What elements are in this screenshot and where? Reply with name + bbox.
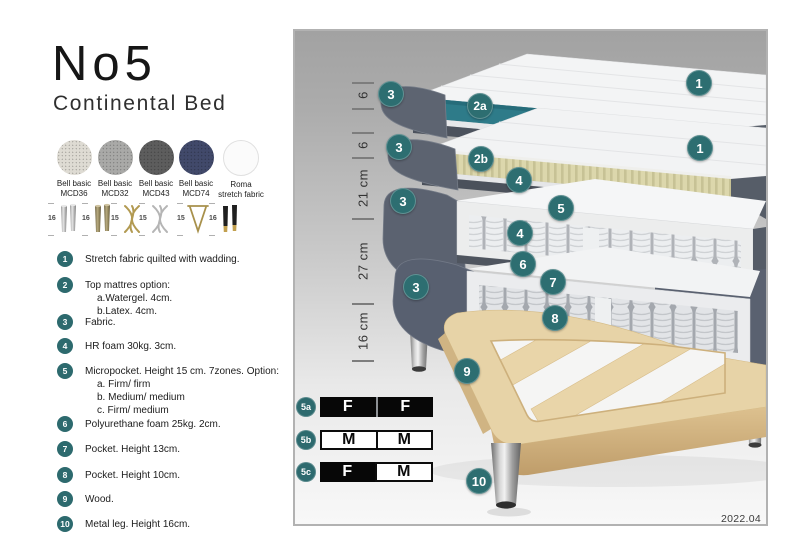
ruler-tick xyxy=(352,82,374,84)
version-stamp: 2022.04 xyxy=(721,513,761,525)
feature-number-badge: 3 xyxy=(57,314,73,330)
measure-dash xyxy=(48,203,54,204)
callout-9: 9 xyxy=(454,358,480,384)
feature-item-1: 1 Stretch fabric quilted with wadding. xyxy=(57,251,240,267)
feature-text: Fabric. xyxy=(85,316,116,329)
fabric-swatch-image xyxy=(223,140,259,176)
callout-8: 8 xyxy=(542,305,568,331)
ruler-tick xyxy=(352,303,374,305)
callout-3-latex: 3 xyxy=(386,134,412,160)
dimension-label-mattress: 21 cm xyxy=(356,169,371,207)
leg-height: 16 xyxy=(209,215,217,223)
swatch-code: stretch fabric xyxy=(213,190,269,200)
ruler-tick xyxy=(352,108,374,110)
feature-number-badge: 7 xyxy=(57,441,73,457)
fabric-swatch-image xyxy=(179,140,214,175)
firmness-cell: M xyxy=(378,430,434,450)
feature-item-8: 8 Pocket. Height 10cm. xyxy=(57,467,180,483)
feature-number-badge: 2 xyxy=(57,277,73,293)
measure-dash xyxy=(48,235,54,236)
feature-text: Wood. xyxy=(85,493,114,506)
callout-1-mid: 1 xyxy=(687,135,713,161)
feature-text: Metal leg. Height 16cm. xyxy=(85,518,190,531)
feature-number-badge: 9 xyxy=(57,491,73,507)
fabric-swatch-roma: Romastretch fabric xyxy=(213,140,269,199)
feature-item-9: 9 Wood. xyxy=(57,491,114,507)
ruler-tick xyxy=(352,157,374,159)
firmness-cell: M xyxy=(320,430,378,450)
feature-subtext: a. Firm/ firm xyxy=(85,378,279,391)
feature-text: Micropocket. Height 15 cm. 7zones. Optio… xyxy=(85,365,279,378)
firmness-row-label-5c: 5c xyxy=(296,462,316,482)
measure-dash xyxy=(177,235,183,236)
callout-7: 7 xyxy=(540,269,566,295)
feature-text: Polyurethane foam 25kg. 2cm. xyxy=(85,418,221,431)
measure-dash xyxy=(139,203,145,204)
leg-height: 16 xyxy=(82,215,90,223)
firmness-cell: F xyxy=(320,397,376,417)
firmness-bar-5a: F F xyxy=(320,397,433,417)
ruler-tick xyxy=(352,218,374,220)
firmness-cell: F xyxy=(320,462,375,482)
feature-number-badge: 1 xyxy=(57,251,73,267)
measure-dash xyxy=(111,235,117,236)
firmness-bar-5b: M M xyxy=(320,430,433,450)
feature-text: Pocket. Height 10cm. xyxy=(85,469,180,482)
feature-number-badge: 4 xyxy=(57,338,73,354)
measure-dash xyxy=(82,203,88,204)
feature-text: Pocket. Height 13cm. xyxy=(85,443,180,456)
measure-dash xyxy=(177,203,183,204)
firmness-row-label-5a: 5a xyxy=(296,397,316,417)
feature-item-6: 6 Polyurethane foam 25kg. 2cm. xyxy=(57,416,221,432)
callout-4-top: 4 xyxy=(506,167,532,193)
dimension-label-topper: 6 xyxy=(356,91,371,99)
leg-height: 15 xyxy=(177,215,185,223)
measure-dash xyxy=(209,203,215,204)
firmness-row-label-5b: 5b xyxy=(296,430,316,450)
feature-text: Stretch fabric quilted with wadding. xyxy=(85,253,240,266)
feature-item-7: 7 Pocket. Height 13cm. xyxy=(57,441,180,457)
callout-4-bottom: 4 xyxy=(507,220,533,246)
feature-text: HR foam 30kg. 3cm. xyxy=(85,340,176,353)
feature-number-badge: 6 xyxy=(57,416,73,432)
feature-subtext: b. Medium/ medium xyxy=(85,391,279,404)
leg-option-1: 16 xyxy=(48,202,81,236)
feature-item-3: 3 Fabric. xyxy=(57,314,116,330)
measure-dash xyxy=(209,235,215,236)
feature-subtext: a.Watergel. 4cm. xyxy=(85,292,172,305)
leg-cylinder-silver-icon xyxy=(57,202,81,236)
callout-1-top: 1 xyxy=(686,70,712,96)
dimension-label-leg: 16 cm xyxy=(356,312,371,350)
diagram-panel: 6 6 21 cm 27 cm 16 cm 3 2a 1 3 2b 1 4 5 … xyxy=(293,29,768,526)
leg-height: 15 xyxy=(111,215,119,223)
feature-item-5: 5 Micropocket. Height 15 cm. 7zones. Opt… xyxy=(57,363,279,417)
leg-option-2: 16 xyxy=(82,202,115,236)
feature-number-badge: 10 xyxy=(57,516,73,532)
ruler-tick xyxy=(352,360,374,362)
callout-2a: 2a xyxy=(467,93,493,119)
callout-3-mattress: 3 xyxy=(390,188,416,214)
feature-text: Top mattres option: xyxy=(85,279,172,292)
leg-height: 15 xyxy=(139,215,147,223)
leg-option-6: 16 xyxy=(209,202,242,236)
firmness-cell: M xyxy=(375,462,434,482)
swatch-name: Roma xyxy=(213,180,269,190)
page-title: No5 xyxy=(52,36,157,92)
feature-number-badge: 5 xyxy=(57,363,73,379)
leg-height: 16 xyxy=(48,215,56,223)
firmness-bar-5c: F M xyxy=(320,462,433,482)
leg-hairpin-icon xyxy=(186,202,210,236)
callout-10: 10 xyxy=(466,468,492,494)
callout-3-base: 3 xyxy=(403,274,429,300)
leg-black-gold-icon xyxy=(218,202,242,236)
ruler-tick xyxy=(352,132,374,134)
dimension-label-topper2: 6 xyxy=(356,141,371,149)
feature-item-2: 2 Top mattres option: a.Watergel. 4cm. b… xyxy=(57,277,172,318)
callout-2b: 2b xyxy=(468,146,494,172)
firmness-cell: F xyxy=(376,397,434,417)
leg-option-4: 15 xyxy=(139,202,172,236)
leg-twisted-silver-icon xyxy=(148,202,172,236)
callout-3-topper: 3 xyxy=(378,81,404,107)
leg-option-5: 15 xyxy=(177,202,210,236)
infographic-page: No5 Continental Bed Bell basicMCD36 Bell… xyxy=(0,18,800,551)
callout-6: 6 xyxy=(510,251,536,277)
dimension-label-base: 27 cm xyxy=(356,242,371,280)
measure-dash xyxy=(82,235,88,236)
callout-5: 5 xyxy=(548,195,574,221)
page-subtitle: Continental Bed xyxy=(53,92,226,116)
feature-item-10: 10 Metal leg. Height 16cm. xyxy=(57,516,190,532)
measure-dash xyxy=(111,203,117,204)
measure-dash xyxy=(139,235,145,236)
feature-item-4: 4 HR foam 30kg. 3cm. xyxy=(57,338,176,354)
feature-number-badge: 8 xyxy=(57,467,73,483)
